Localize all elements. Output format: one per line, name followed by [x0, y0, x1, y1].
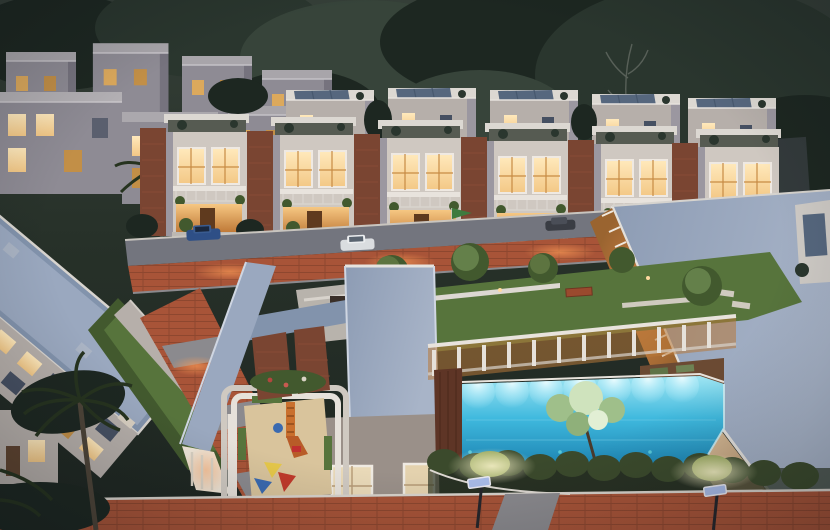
vignette — [0, 0, 830, 530]
render-canvas — [0, 0, 830, 530]
aerial-render — [0, 0, 830, 530]
